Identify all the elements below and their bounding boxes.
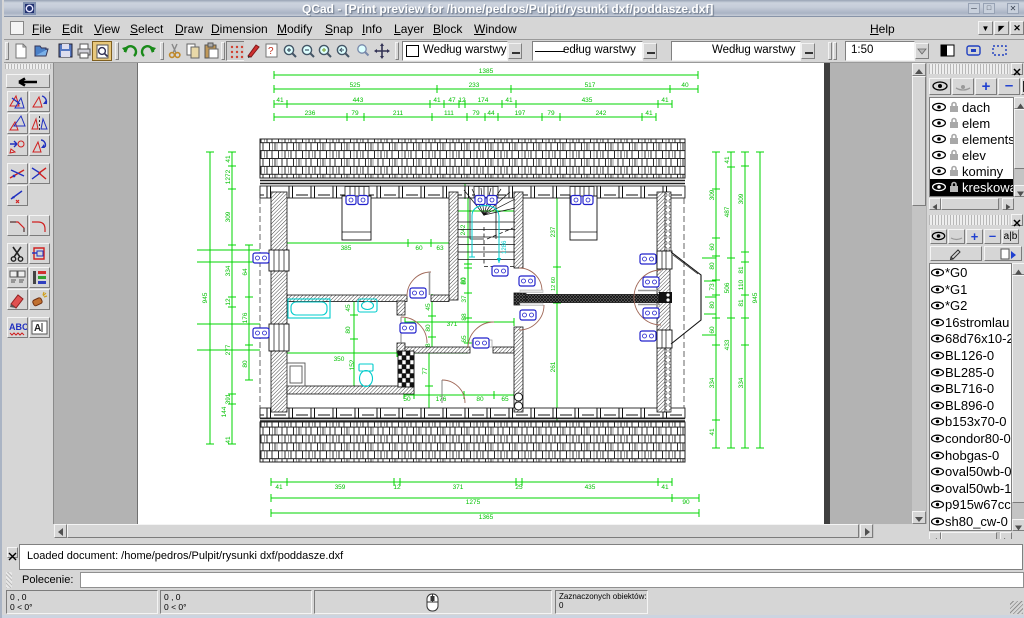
svg-text:371: 371 — [447, 321, 458, 328]
svg-text:77: 77 — [422, 367, 429, 375]
svg-text:80: 80 — [345, 326, 352, 334]
svg-text:334: 334 — [709, 377, 716, 388]
svg-text:433: 433 — [724, 339, 731, 350]
svg-text:80: 80 — [242, 360, 249, 368]
svg-text:1286: 1286 — [502, 240, 508, 254]
svg-text:47: 47 — [448, 97, 456, 104]
svg-text:45: 45 — [345, 304, 352, 312]
svg-text:174: 174 — [478, 97, 489, 104]
svg-text:1275: 1275 — [466, 499, 481, 506]
svg-text:443: 443 — [353, 97, 364, 104]
svg-text:111: 111 — [444, 110, 454, 117]
svg-text:12: 12 — [225, 298, 232, 306]
svg-text:50: 50 — [403, 396, 411, 403]
svg-text:12 60: 12 60 — [551, 277, 557, 291]
svg-text:65: 65 — [461, 335, 468, 343]
svg-text:152: 152 — [349, 359, 356, 370]
svg-text:359: 359 — [335, 484, 346, 491]
svg-text:309: 309 — [225, 211, 232, 222]
svg-text:242: 242 — [596, 110, 607, 117]
svg-text:80: 80 — [476, 396, 484, 403]
svg-text:945: 945 — [752, 292, 759, 303]
svg-text:40: 40 — [681, 82, 689, 89]
svg-text:41: 41 — [661, 484, 669, 491]
svg-text:60: 60 — [415, 245, 423, 252]
svg-text:ABC: ABC — [9, 322, 27, 332]
svg-text:277: 277 — [225, 344, 232, 355]
svg-text:309: 309 — [709, 189, 716, 200]
svg-text:?: ? — [268, 46, 274, 57]
svg-text:945: 945 — [202, 292, 209, 303]
svg-text:435: 435 — [582, 97, 593, 104]
svg-text:525: 525 — [350, 82, 361, 89]
svg-text:A: A — [34, 323, 41, 334]
svg-text:261: 261 — [550, 361, 557, 372]
svg-text:37: 37 — [461, 295, 468, 303]
svg-text:80: 80 — [709, 301, 716, 309]
svg-text:1365: 1365 — [479, 514, 494, 521]
svg-text:41: 41 — [225, 155, 232, 163]
svg-text:79: 79 — [547, 110, 555, 117]
svg-text:64: 64 — [242, 268, 249, 276]
svg-text:233: 233 — [469, 82, 480, 89]
svg-text:81: 81 — [738, 299, 745, 307]
svg-text:63: 63 — [436, 245, 444, 252]
svg-text:41: 41 — [505, 97, 513, 104]
svg-text:334: 334 — [738, 377, 745, 388]
svg-text:487: 487 — [724, 206, 731, 217]
svg-text:385: 385 — [341, 245, 352, 252]
svg-text:1385: 1385 — [479, 68, 494, 75]
svg-text:371: 371 — [453, 484, 464, 491]
svg-text:176: 176 — [436, 396, 447, 403]
svg-text:41: 41 — [276, 97, 284, 104]
svg-text:12: 12 — [458, 97, 466, 104]
svg-text:41: 41 — [661, 97, 669, 104]
svg-text:73: 73 — [709, 283, 716, 291]
svg-text:41: 41 — [433, 97, 441, 104]
svg-text:80: 80 — [425, 324, 432, 332]
svg-text:12: 12 — [393, 484, 401, 491]
svg-text:350: 350 — [334, 356, 345, 363]
svg-text:41: 41 — [709, 428, 716, 436]
svg-text:79: 79 — [472, 110, 480, 117]
svg-text:45: 45 — [425, 303, 432, 311]
svg-text:60: 60 — [709, 326, 716, 334]
svg-text:211: 211 — [393, 110, 404, 117]
svg-text:197: 197 — [515, 110, 526, 117]
svg-text:110: 110 — [738, 279, 745, 290]
svg-text:90: 90 — [682, 499, 690, 506]
svg-text:80: 80 — [709, 262, 716, 270]
svg-text:237: 237 — [550, 226, 557, 237]
svg-text:435: 435 — [585, 484, 596, 491]
svg-text:44: 44 — [487, 110, 495, 117]
svg-text:41: 41 — [724, 156, 731, 164]
svg-text:41: 41 — [645, 110, 653, 117]
svg-text:334: 334 — [225, 265, 232, 276]
svg-text:41: 41 — [275, 484, 283, 491]
svg-text:176: 176 — [242, 312, 249, 323]
svg-text:506: 506 — [724, 282, 731, 293]
svg-text:65: 65 — [501, 396, 509, 403]
svg-text:309: 309 — [738, 193, 745, 204]
svg-text:81: 81 — [738, 266, 745, 274]
svg-text:391: 391 — [225, 393, 232, 404]
svg-text:60: 60 — [709, 243, 716, 251]
svg-text:88: 88 — [461, 313, 468, 321]
svg-text:25: 25 — [515, 484, 523, 491]
svg-text:236: 236 — [305, 110, 316, 117]
svg-text:41: 41 — [225, 436, 232, 444]
svg-text:80: 80 — [461, 277, 468, 285]
svg-text:517: 517 — [585, 82, 596, 89]
svg-text:144: 144 — [221, 406, 228, 417]
svg-text:1272: 1272 — [225, 169, 232, 184]
svg-text:79: 79 — [351, 110, 359, 117]
